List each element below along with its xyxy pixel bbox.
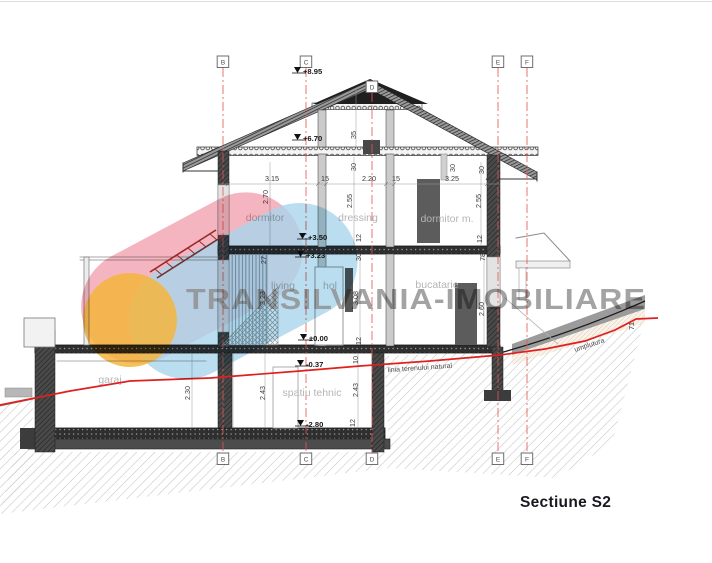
dim-top-3: 2.20 xyxy=(362,174,376,183)
grid-label-e-top: E xyxy=(496,59,500,66)
step-left xyxy=(5,388,32,397)
footing-right xyxy=(484,390,511,401)
wall-basement-left xyxy=(35,330,55,452)
dim-slab-10: 10 xyxy=(351,356,360,364)
elevation-ground: ±0.00 xyxy=(309,334,328,343)
grid-label-b-bottom: B xyxy=(221,456,225,463)
attic-post-b xyxy=(386,110,394,147)
grid-label-d-bottom: D xyxy=(370,456,375,463)
watermark-text: TRANSILVANIA-IMOBILIARE xyxy=(186,284,646,316)
parapet-left xyxy=(24,318,55,347)
logo-yellow-shape xyxy=(83,273,177,367)
dim-attic-2: 30 xyxy=(349,163,358,171)
elevation-basement: -2.80 xyxy=(306,420,323,429)
room-label-spatiu-tehnic: spatiu tehnic xyxy=(283,387,342,399)
dim-top-2: 15 xyxy=(321,174,329,183)
grid-label-c-top: C xyxy=(304,59,309,66)
room-label-dressing: dressing xyxy=(338,212,378,224)
ridge-block xyxy=(363,140,380,154)
grid-label-b-top: B xyxy=(221,59,225,66)
dim-slab-12b: 12 xyxy=(354,337,363,345)
dim-f1-dressing: 2.55 xyxy=(345,194,354,208)
grid-label-d-top: D xyxy=(370,84,375,91)
dim-basement-243a: 2.43 xyxy=(258,386,267,400)
section-drawing: B C D E F B C D E F +8.95 +6.70 +3.50 +3… xyxy=(0,0,712,563)
dim-basement-garaj: 2.30 xyxy=(183,386,192,400)
dim-top-4: 15 xyxy=(392,174,400,183)
grid-label-f-top: F xyxy=(525,59,529,66)
dim-slab-12a: 12 xyxy=(354,234,363,242)
porch-roof-right xyxy=(516,233,570,261)
partition-floor1-b xyxy=(386,154,394,247)
dim-right-78: 78 xyxy=(478,253,487,261)
porch-ledge-right xyxy=(516,261,570,268)
foundation-pad-left xyxy=(20,428,35,449)
basement-slab xyxy=(35,428,385,439)
foundation-stub-right xyxy=(492,347,503,393)
dim-attic-3: 30 xyxy=(448,164,457,172)
drawing-title: Sectiune S2 xyxy=(520,494,611,511)
dim-attic-1: 35 xyxy=(349,131,358,139)
elevation-terrace: -0.37 xyxy=(306,360,323,369)
dim-basement-243b: 2.43 xyxy=(351,383,360,397)
dim-top-5: 3.25 xyxy=(445,174,459,183)
room-label-dormitor-m: dormitor m. xyxy=(420,213,473,225)
section-drawing-canvas: B C D E F B C D E F +8.95 +6.70 +3.50 +3… xyxy=(0,0,712,563)
dim-top-1: 3.15 xyxy=(265,174,279,183)
elevation-eaves: +6.70 xyxy=(303,134,322,143)
grid-label-f-bottom: F xyxy=(525,456,529,463)
elevation-ridge: +8.95 xyxy=(303,67,323,76)
foundation-bed xyxy=(28,439,390,449)
dim-f1-dormitor-m: 2.55 xyxy=(474,194,483,208)
dim-attic-4: 30 xyxy=(477,166,486,174)
dim-wall-right: 44 xyxy=(486,177,493,183)
dormitor-m-door xyxy=(417,179,440,243)
roof-slope-left xyxy=(183,81,370,171)
dim-right-12: 12 xyxy=(475,235,484,243)
grid-label-e-bottom: E xyxy=(496,456,500,463)
wall-basement-right xyxy=(372,353,384,452)
dim-basement-12: 12 xyxy=(348,419,357,427)
grid-label-c-bottom: C xyxy=(304,456,309,463)
dim-basement-225: 2.25 xyxy=(224,385,233,399)
